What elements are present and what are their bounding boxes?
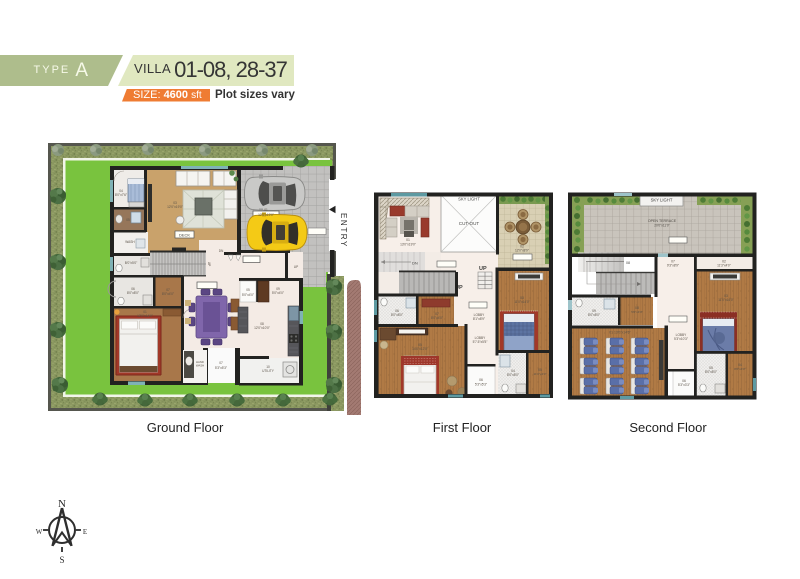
svg-text:9'3"x8'9": 9'3"x8'9": [667, 264, 679, 268]
svg-text:01 13'0"x14'6": 01 13'0"x14'6": [609, 331, 631, 335]
svg-text:5'7.5"x5'5": 5'7.5"x5'5": [473, 340, 488, 344]
svg-text:11'0"x14'0": 11'0"x14'0": [718, 298, 733, 302]
svg-text:DECK: DECK: [179, 232, 190, 237]
svg-text:8'0"x8'0": 8'0"x8'0": [588, 313, 600, 317]
svg-text:12'0"x8'9": 12'0"x8'9": [515, 249, 529, 253]
svg-text:11'0"x14'0": 11'0"x14'0": [514, 300, 529, 304]
svg-text:WASH: WASH: [196, 364, 204, 368]
svg-text:8'0"x8'0": 8'0"x8'0": [507, 373, 519, 377]
svg-text:5'3"x3'3": 5'3"x3'3": [678, 383, 690, 387]
svg-text:12'0"x19'0": 12'0"x19'0": [167, 205, 183, 209]
svg-text:OPEN TERRACE: OPEN TERRACE: [648, 219, 677, 223]
svg-text:05: 05: [246, 288, 250, 292]
svg-text:CUT-OUT: CUT-OUT: [459, 221, 480, 226]
svg-text:SKY LIGHT: SKY LIGHT: [458, 197, 480, 202]
svg-text:08: 08: [626, 261, 630, 265]
svg-text:8'0"x4'0": 8'0"x4'0": [734, 367, 745, 371]
svg-text:B'0"x5'0": B'0"x5'0": [125, 261, 138, 265]
svg-text:8'0"x7'6": 8'0"x7'6": [115, 193, 127, 197]
svg-text:8'0"x8'0": 8'0"x8'0": [127, 291, 139, 295]
svg-text:11'3"x4'0": 11'3"x4'0": [717, 264, 731, 268]
svg-text:UP: UP: [294, 265, 298, 269]
svg-text:N: N: [58, 498, 66, 510]
svg-text:UP: UP: [479, 266, 487, 272]
svg-text:5'0"x4'0": 5'0"x4'0": [631, 310, 642, 314]
svg-text:05: 05: [126, 218, 130, 222]
svg-text:20'0"x11'0": 20'0"x11'0": [654, 224, 669, 228]
svg-text:8'0"x8'0": 8'0"x8'0": [705, 370, 717, 374]
svg-text:07: 07: [219, 361, 223, 365]
svg-text:ENTRY: ENTRY: [339, 213, 348, 248]
svg-text:5'0"x4'0": 5'0"x4'0": [272, 291, 284, 295]
svg-text:DN: DN: [412, 261, 418, 266]
svg-text:5'0"x4'0": 5'0"x4'0": [242, 293, 254, 297]
svg-text:8'0"x4'0": 8'0"x4'0": [162, 292, 174, 296]
svg-text:8'1"x8'9": 8'1"x8'9": [473, 317, 485, 321]
svg-text:5'3"x10'3": 5'3"x10'3": [674, 337, 688, 341]
svg-text:14'0"x12'0": 14'0"x12'0": [412, 347, 428, 351]
svg-text:06: 06: [479, 378, 483, 382]
svg-text:DN: DN: [219, 249, 224, 253]
svg-text:WASH: WASH: [125, 240, 135, 244]
svg-text:13'0"x19'0": 13'0"x19'0": [400, 243, 416, 247]
svg-text:5'3"x5'3": 5'3"x5'3": [215, 366, 227, 370]
svg-text:5'3"x5'3": 5'3"x5'3": [475, 383, 487, 387]
svg-text:12'0"x10'0": 12'0"x10'0": [254, 326, 270, 330]
svg-text:01: 01: [406, 238, 410, 242]
svg-text:S: S: [59, 555, 64, 565]
svg-text:E: E: [83, 528, 87, 536]
svg-text:UP: UP: [207, 262, 211, 266]
svg-text:UTILITY: UTILITY: [262, 369, 275, 373]
svg-text:11'0"x4'0": 11'0"x4'0": [534, 372, 547, 376]
svg-text:12'0"x14'0": 12'0"x14'0": [137, 314, 153, 318]
svg-text:8'0"x8'0": 8'0"x8'0": [391, 313, 403, 317]
svg-text:12'0"x19'0": 12'0"x19'0": [258, 213, 274, 217]
svg-text:SKY LIGHT: SKY LIGHT: [651, 198, 673, 203]
svg-text:01: 01: [264, 208, 268, 212]
svg-text:8'0"x4'0": 8'0"x4'0": [431, 316, 443, 320]
svg-text:W: W: [36, 528, 43, 536]
